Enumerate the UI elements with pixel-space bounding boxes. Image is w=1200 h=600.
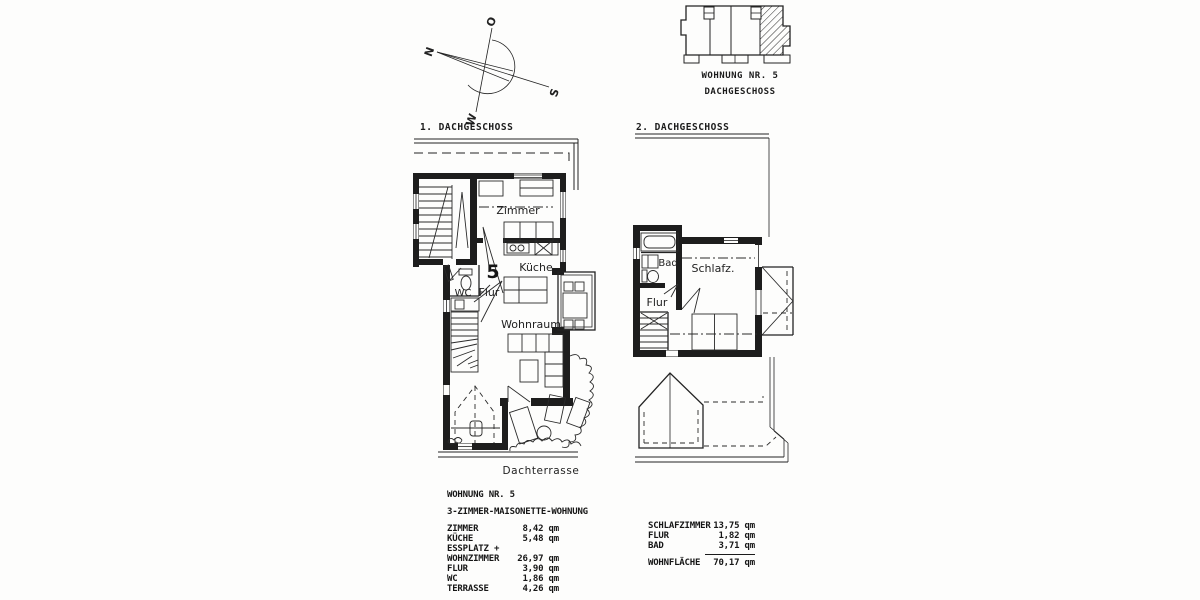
plan-2: 2. DACHGESCHOSS	[633, 122, 793, 462]
total-label: WOHNFLÄCHE	[648, 558, 700, 568]
room-label-zimmer: Zimmer	[496, 204, 540, 217]
compass-east-label: O	[484, 15, 499, 28]
floorplan-drawing: N O S W WOHNUNG NR. 5 DACHGESCHOSS 1. DA…	[0, 0, 1200, 600]
unit-location-hatch	[760, 6, 790, 55]
roof-slope-room	[451, 386, 500, 443]
compass-south-label: S	[547, 87, 562, 99]
row-value: 26,97 qm	[517, 554, 559, 564]
table-row: TERRASSE4,26 qm	[447, 584, 559, 594]
plan2-title: 2. DACHGESCHOSS	[636, 122, 729, 133]
room-label-wohnraum: Wohnraum	[501, 318, 561, 331]
total-row: WOHNFLÄCHE70,17 qm	[648, 558, 755, 568]
roof-edge-lines-2	[635, 134, 769, 237]
sink-icon	[642, 255, 658, 268]
schlafzimmer-door-swing	[682, 288, 700, 313]
table-row: KÜCHE5,48 qm	[447, 534, 559, 544]
row-label: ESSPLATZ +	[447, 544, 499, 554]
sofa-icon	[508, 334, 563, 387]
dormer	[762, 267, 793, 335]
unit-number: 5	[486, 261, 499, 283]
total-value: 70,17 qm	[713, 558, 755, 568]
lounge-chair-icon	[509, 407, 537, 444]
gable-outline	[639, 373, 703, 448]
compass-rose: N O S W	[422, 15, 562, 128]
row-label: BAD	[648, 541, 664, 551]
room-label-wc: WC	[455, 288, 472, 299]
area-table-plan2: SCHLAFZIMMER13,75 qm FLUR1,82 qm BAD3,71…	[648, 521, 755, 568]
row-value: 1,82 qm	[718, 531, 755, 541]
table-row: BAD3,71 qm	[648, 541, 755, 551]
room-label-bad: Bad	[658, 258, 677, 269]
row-value: 1,86 qm	[522, 574, 559, 584]
key-plan: WOHNUNG NR. 5 DACHGESCHOSS	[681, 6, 790, 97]
row-label: FLUR	[447, 564, 468, 574]
chimney-icon	[704, 7, 761, 19]
room-label-flur1: Flur	[479, 286, 500, 299]
table-row: FLUR1,82 qm	[648, 531, 755, 541]
table-row: FLUR3,90 qm	[447, 564, 559, 574]
row-value: 4,26 qm	[522, 584, 559, 594]
row-value: 3,90 qm	[522, 564, 559, 574]
double-bed-icon	[670, 314, 762, 350]
area-table1-subtitle: 3-ZIMMER-MAISONETTE-WOHNUNG	[447, 507, 577, 517]
internal-staircase	[451, 312, 478, 372]
row-label: WC	[447, 574, 457, 584]
roof-outline	[635, 357, 788, 462]
row-label: ZIMMER	[447, 524, 478, 534]
dining-bay	[558, 272, 595, 330]
washbasin-icon	[451, 298, 479, 311]
coffee-table-icon	[520, 360, 538, 382]
room-label-kueche: Küche	[519, 261, 553, 274]
row-value: 13,75 qm	[713, 521, 755, 531]
table-row: ZIMMER8,42 qm	[447, 524, 559, 534]
row-label: FLUR	[648, 531, 669, 541]
floorplan-sheet: N O S W WOHNUNG NR. 5 DACHGESCHOSS 1. DA…	[0, 0, 1200, 600]
table-row: WOHNZIMMER26,97 qm	[447, 554, 559, 564]
toilet-icon	[642, 270, 659, 283]
sum-rule	[705, 554, 755, 555]
row-value: 5,48 qm	[522, 534, 559, 544]
stairwell-staircase	[419, 185, 468, 259]
area-table-plan1: WOHNUNG NR. 5 3-ZIMMER-MAISONETTE-WOHNUN…	[447, 490, 577, 594]
row-label: SCHLAFZIMMER	[648, 521, 711, 531]
compass-north-label: N	[422, 45, 437, 58]
table-row: SCHLAFZIMMER13,75 qm	[648, 521, 755, 531]
plan-1: 1. DACHGESCHOSS	[413, 122, 595, 477]
row-value: 8,42 qm	[522, 524, 559, 534]
toilet-icon	[459, 269, 472, 290]
dining-table-icon	[563, 293, 587, 318]
staircase-2	[640, 313, 668, 348]
row-label: KÜCHE	[447, 534, 473, 544]
room-label-flur2: Flur	[647, 296, 668, 309]
key-plan-subtitle: DACHGESCHOSS	[704, 87, 775, 97]
room-label-schlafzimmer: Schlafz.	[692, 262, 735, 275]
stove-icon	[535, 241, 552, 255]
bathtub-icon	[641, 233, 678, 251]
row-label: TERRASSE	[447, 584, 489, 594]
table-row: WC1,86 qm	[447, 574, 559, 584]
row-label: WOHNZIMMER	[447, 554, 499, 564]
plan1-title: 1. DACHGESCHOSS	[420, 122, 513, 133]
terrace-label: Dachterrasse	[502, 465, 579, 477]
key-plan-title: WOHNUNG NR. 5	[702, 71, 779, 81]
area-table1-title: WOHNUNG NR. 5	[447, 490, 577, 500]
table-row: ESSPLATZ +	[447, 544, 559, 554]
row-value: 3,71 qm	[718, 541, 755, 551]
